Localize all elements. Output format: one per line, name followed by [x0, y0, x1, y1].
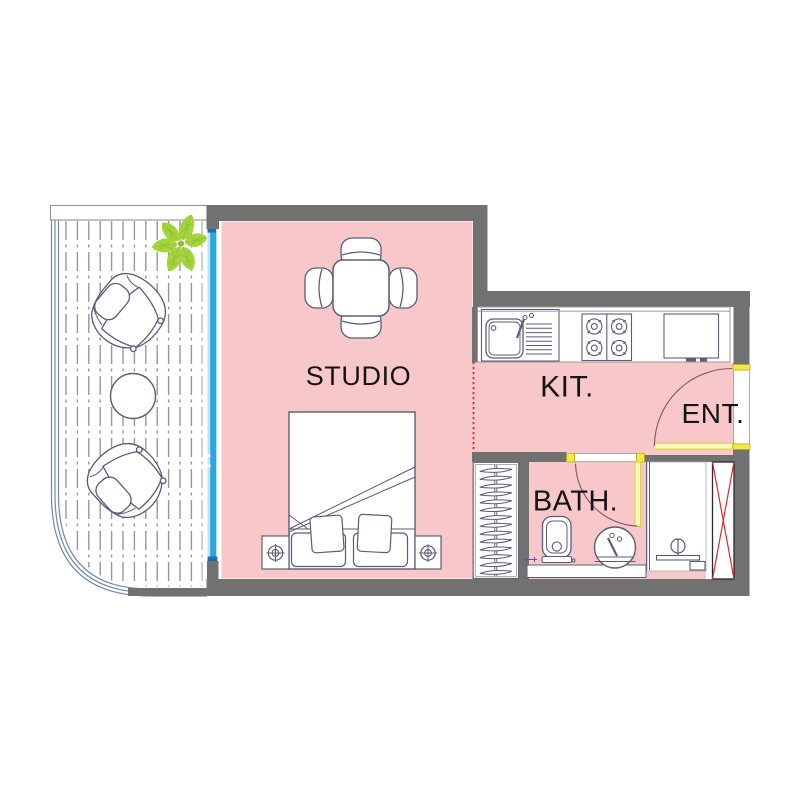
svg-text:KIT.: KIT. — [540, 371, 594, 404]
svg-text:STUDIO: STUDIO — [306, 361, 412, 391]
svg-text:BATH.: BATH. — [533, 486, 618, 518]
svg-text:ENT.: ENT. — [681, 398, 744, 429]
